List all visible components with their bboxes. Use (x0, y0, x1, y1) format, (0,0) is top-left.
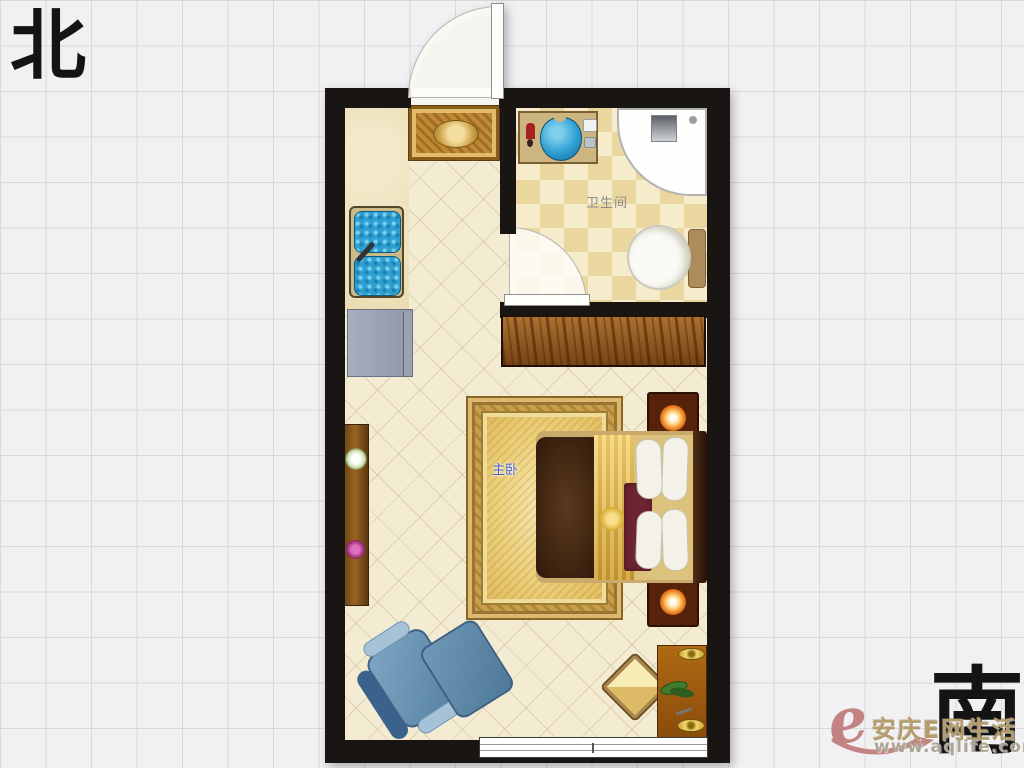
flower-white-icon (345, 448, 367, 470)
desk (657, 645, 707, 738)
wall-right (707, 88, 730, 763)
wash-basin (540, 117, 582, 161)
wall-left (325, 88, 345, 763)
kitchen-sink (349, 206, 404, 298)
table-lamp-top-icon (660, 405, 686, 431)
bed-pillow-3 (635, 511, 663, 570)
shower-head-icon (651, 115, 677, 142)
entrance-rug-medallion (433, 120, 479, 148)
bed-pillow-2 (661, 437, 689, 502)
refrigerator (347, 309, 413, 377)
table-lamp-bottom-icon (660, 589, 686, 615)
bedroom-label: 主卧 (492, 459, 518, 478)
window (479, 737, 708, 758)
bathroom-vanity (518, 111, 598, 164)
watermark: e 安庆E网生活 www.aqlife.com (826, 694, 1024, 768)
floor-plan: 卫生间 主卧 (325, 88, 730, 763)
vanity-accessory-1 (583, 119, 597, 132)
nightstand-bottom (647, 576, 699, 627)
double-bed (536, 431, 707, 583)
faucet-base (527, 139, 533, 147)
bed-headboard (693, 431, 707, 583)
bathroom-door-leaf (504, 294, 590, 306)
desk-plate-bottom (677, 719, 705, 732)
wall-top-right (499, 88, 730, 108)
desk-plate-top (678, 648, 705, 660)
window-handle-icon (592, 743, 594, 753)
wardrobe (501, 315, 706, 367)
bed-pillow-1 (635, 439, 663, 500)
bathroom-wall-vertical (500, 108, 516, 234)
shower-knob-icon (689, 116, 697, 124)
basin-notch (554, 113, 566, 122)
sink-basin-top (354, 211, 401, 253)
toilet-bowl (627, 225, 691, 290)
refrigerator-door (403, 312, 412, 376)
bed-pillow-4 (661, 509, 689, 572)
desk-plant-leaf (669, 686, 694, 699)
bathroom-label: 卫生间 (586, 192, 628, 211)
bed-blanket (536, 437, 598, 578)
faucet-icon (526, 123, 535, 139)
entrance-rug (408, 105, 500, 161)
flower-purple-icon (346, 540, 365, 559)
sink-basin-bottom (354, 256, 401, 296)
page: { "page": {"background": "#f1f1f3", "gri… (0, 0, 1024, 768)
vanity-accessory-2 (584, 137, 596, 148)
desk-pen-icon (676, 707, 692, 715)
watermark-site-url: www.aqlife.com (874, 737, 1024, 757)
entry-door-leaf (491, 3, 504, 99)
entry-door-swing (408, 6, 499, 98)
bed-bow-decor (600, 507, 624, 531)
compass-north-label: 北 (10, 8, 86, 84)
